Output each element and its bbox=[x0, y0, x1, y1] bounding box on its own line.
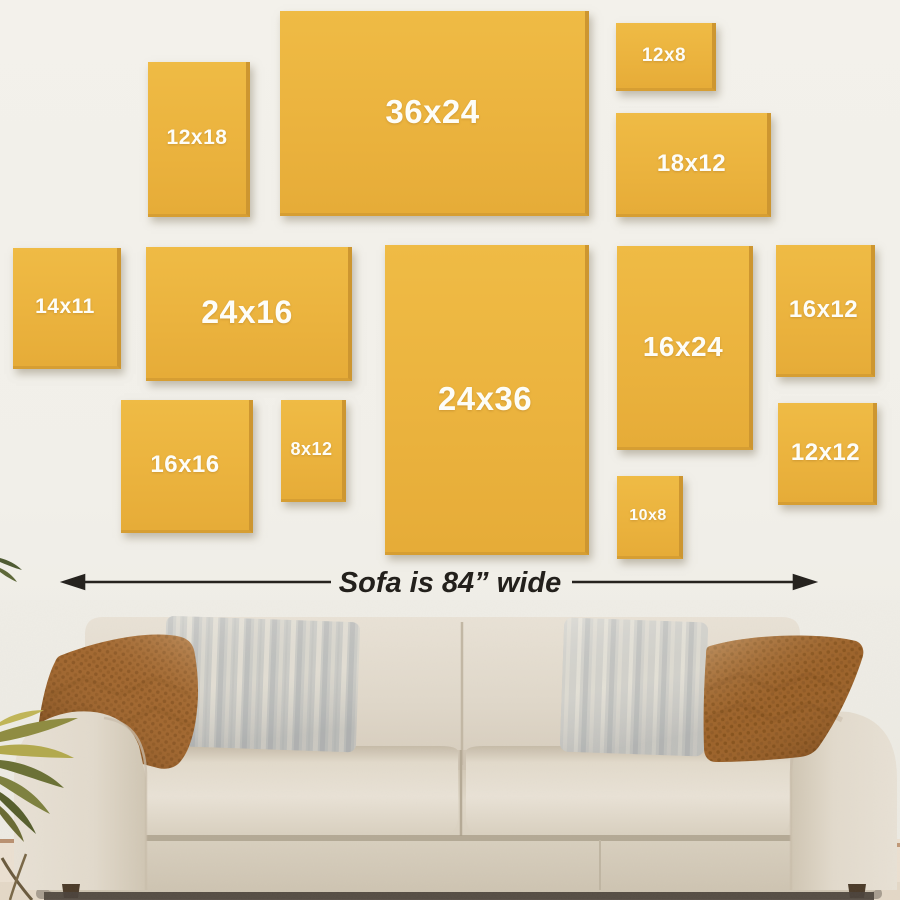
svg-text:Sofa is 84” wide: Sofa is 84” wide bbox=[339, 567, 561, 599]
